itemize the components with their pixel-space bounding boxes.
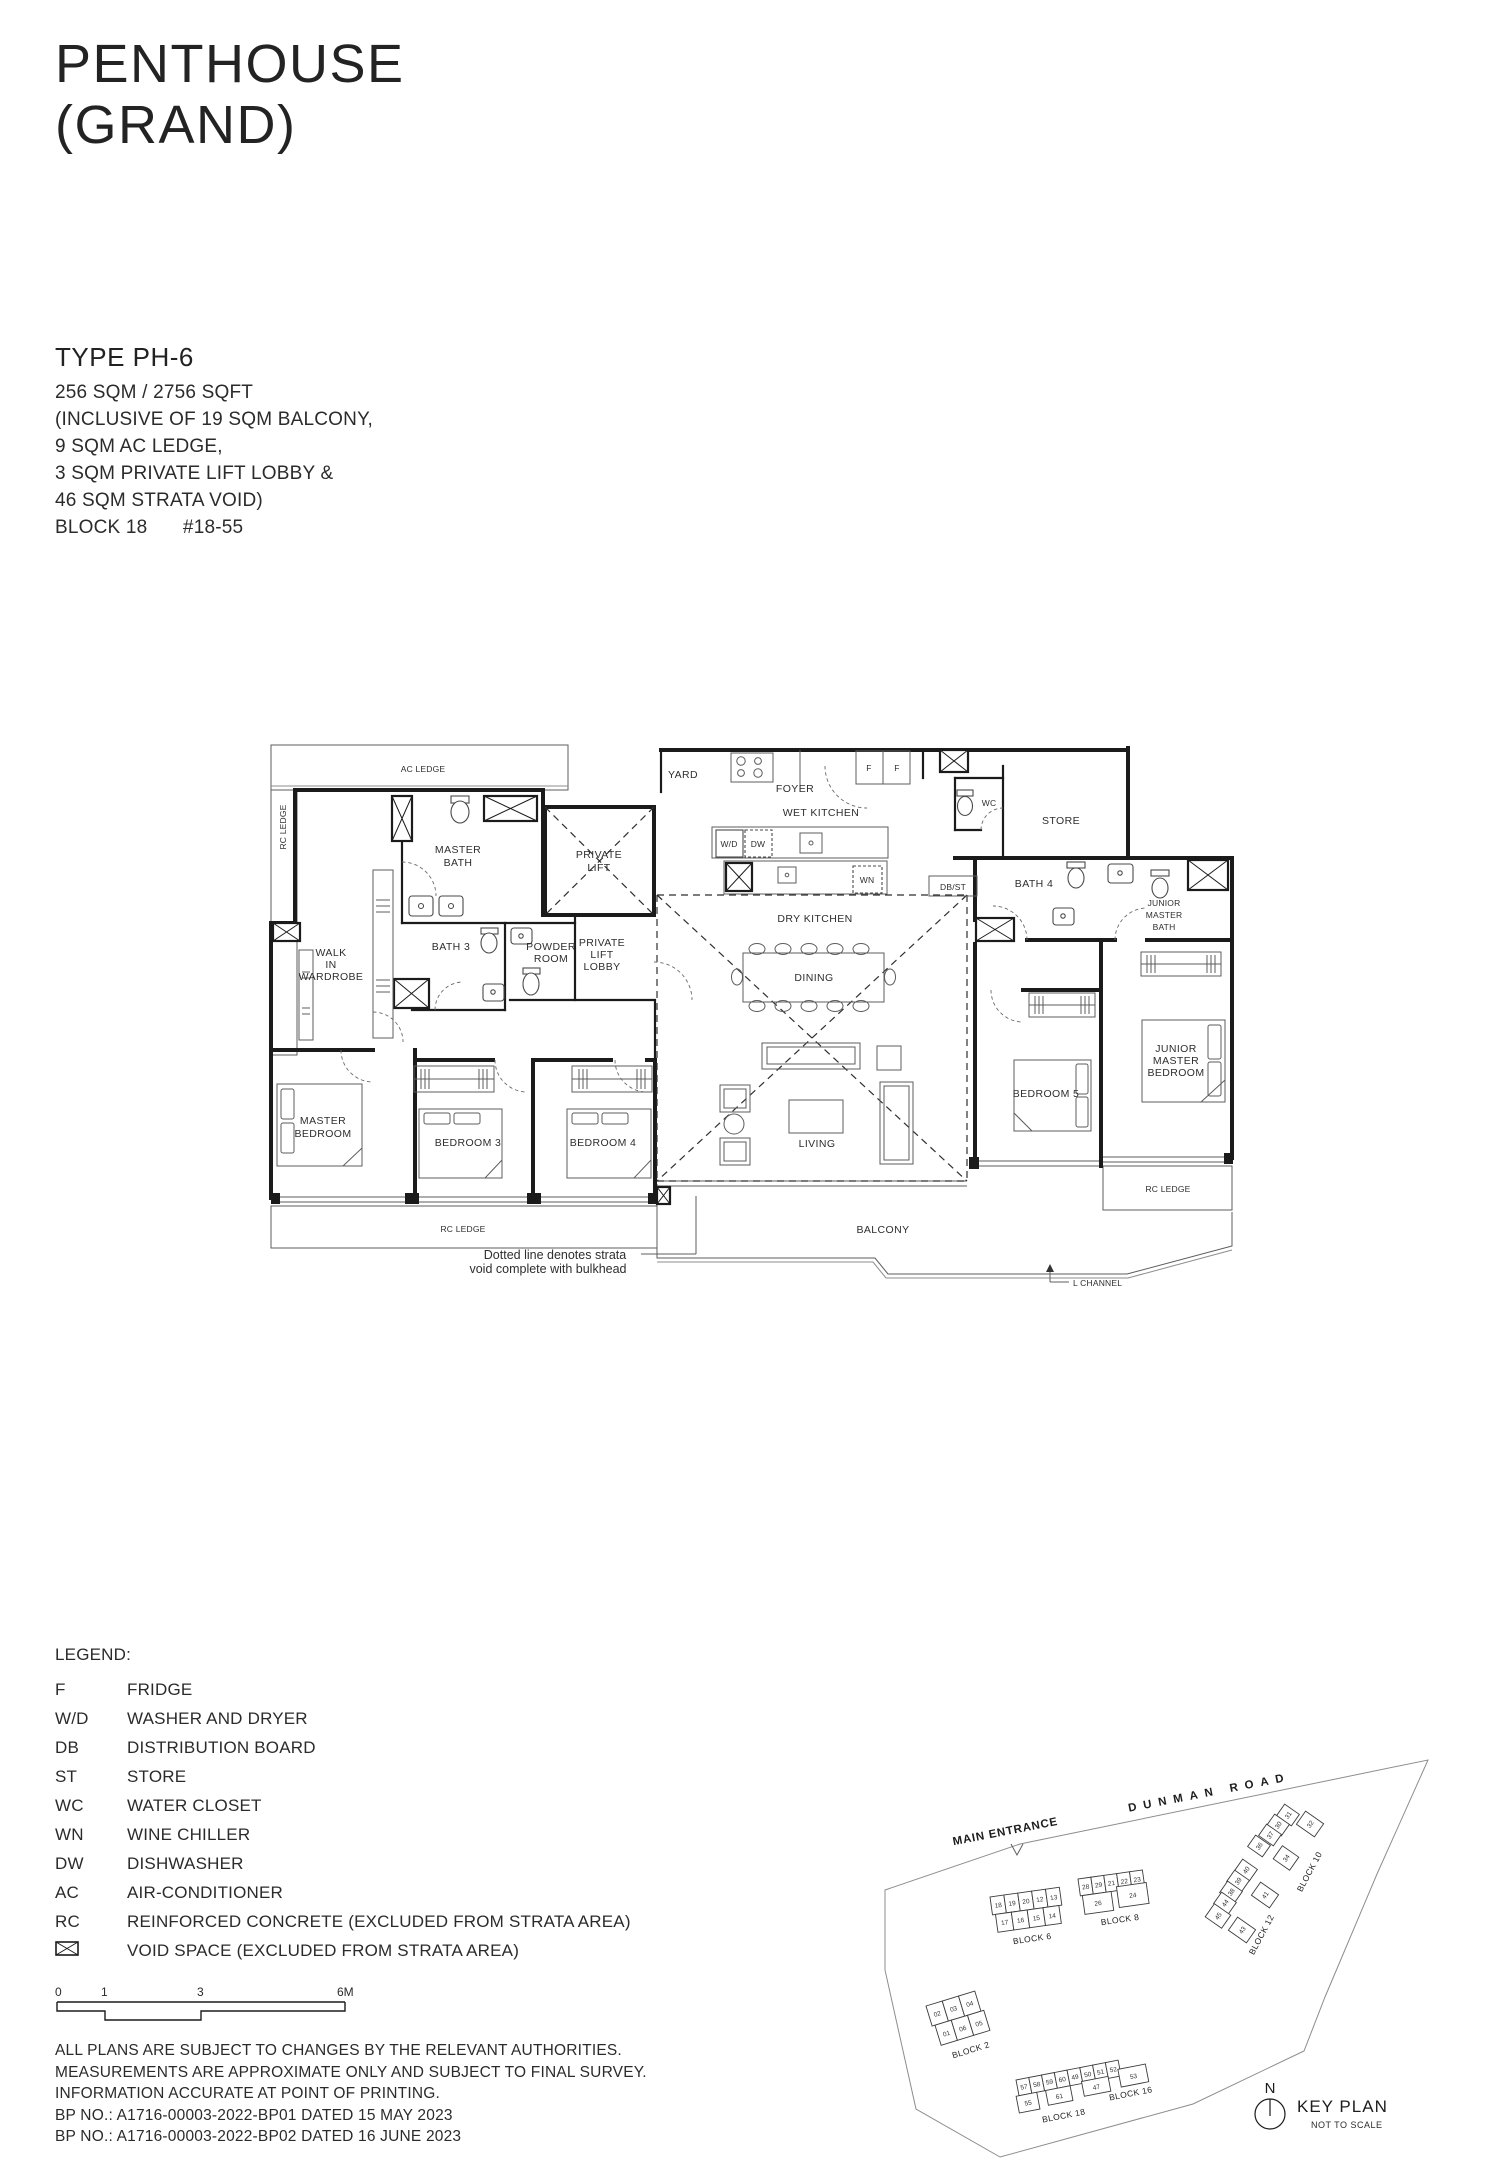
keyplan-subtitle: NOT TO SCALE (1311, 2120, 1383, 2130)
legend: LEGEND: FFRIDGE W/DWASHER AND DRYER DBDI… (55, 1645, 631, 1965)
private-lift-shaft (545, 807, 654, 915)
unit-inclusive-4: 46 SQM STRATA VOID) (55, 487, 373, 514)
label-walk-in-wardrobe: WALK (316, 947, 347, 959)
label-living: LIVING (799, 1138, 836, 1150)
unit-area: 256 SQM / 2756 SQFT (55, 379, 373, 406)
legend-heading: LEGEND: (55, 1645, 631, 1665)
keyplan-unit: 29 (1095, 1882, 1104, 1890)
legend-abbr: WN (55, 1825, 127, 1845)
label-bedroom-4: BEDROOM 4 (570, 1137, 637, 1149)
legend-row: ACAIR-CONDITIONER (55, 1878, 631, 1907)
north-label: N (1265, 2080, 1276, 2097)
label-master-bedroom: MASTER (300, 1115, 346, 1127)
strata-note-line2: void complete with bulkhead (469, 1262, 626, 1276)
label-private-lift-lobby: PRIVATE (579, 937, 625, 949)
legend-abbr: W/D (55, 1709, 127, 1729)
legend-desc: AIR-CONDITIONER (127, 1883, 283, 1903)
keyplan-block-label: BLOCK 8 (1100, 1912, 1140, 1927)
label-junior-master-bedroom: JUNIOR (1155, 1043, 1197, 1055)
legend-abbr: WC (55, 1796, 127, 1816)
label-junior-master-bath: BATH (1153, 922, 1176, 932)
keyplan-unit: 20 (1022, 1898, 1031, 1906)
label-dishwasher: DW (751, 839, 766, 849)
page-title: PENTHOUSE (GRAND) (55, 34, 405, 156)
main-entrance-label: MAIN ENTRANCE (952, 1816, 1059, 1848)
north-compass-icon: N (1255, 2080, 1285, 2129)
page-title-line1: PENTHOUSE (55, 34, 405, 95)
keyplan-block-10: 31 30 37 36 34 32 BLOCK 10 (1248, 1804, 1324, 1893)
label-private-lift-lobby: LIFT (590, 949, 613, 961)
legend-desc: DISTRIBUTION BOARD (127, 1738, 316, 1758)
unit-info: TYPE PH-6 256 SQM / 2756 SQFT (INCLUSIVE… (55, 344, 373, 541)
scale-tick-0: 0 (55, 1985, 62, 1999)
key-plan: DUNMAN ROAD MAIN ENTRANCE 18 19 20 12 13… (880, 1740, 1500, 2160)
legend-desc: DISHWASHER (127, 1854, 244, 1874)
legend-desc: WASHER AND DRYER (127, 1709, 308, 1729)
label-wine-chiller: WN (860, 875, 875, 885)
keyplan-block-label: BLOCK 2 (951, 2039, 991, 2060)
unit-number: #18-55 (183, 514, 243, 541)
label-l-channel: L CHANNEL (1073, 1278, 1122, 1288)
unit-block: BLOCK 18 (55, 514, 147, 541)
label-walk-in-wardrobe: WARDROBE (299, 971, 364, 983)
label-ac-ledge: AC LEDGE (401, 764, 446, 774)
legend-abbr: F (55, 1680, 127, 1700)
keyplan-block-label: BLOCK 10 (1295, 1850, 1324, 1893)
label-bath-4: BATH 4 (1015, 878, 1053, 890)
keyplan-block-6: 18 19 20 12 13 17 16 15 14 BLOCK 6 (990, 1887, 1067, 1948)
floor-plan: AC LEDGE RC LEDGE RC LEDGE RC LEDGE MAST… (255, 700, 1245, 1320)
label-junior-master-bath: MASTER (1146, 910, 1183, 920)
keyplan-title: KEY PLAN (1297, 2097, 1388, 2116)
disclaimer: ALL PLANS ARE SUBJECT TO CHANGES BY THE … (55, 2040, 647, 2148)
label-db-store: DB/ST (940, 882, 966, 892)
scale-tick-3: 3 (197, 1985, 204, 1999)
keyplan-block-label: BLOCK 18 (1041, 2106, 1086, 2124)
keyplan-block-8: 28 29 21 22 23 26 24 BLOCK 8 (1078, 1870, 1151, 1930)
keyplan-block-12: 40 39 38 44 45 41 43 BLOCK 12 (1205, 1859, 1278, 1956)
legend-row: WCWATER CLOSET (55, 1791, 631, 1820)
legend-abbr: DB (55, 1738, 127, 1758)
legend-desc: REINFORCED CONCRETE (EXCLUDED FROM STRAT… (127, 1912, 631, 1932)
legend-abbr: AC (55, 1883, 127, 1903)
scale-bar: 0 1 3 6M (55, 1985, 375, 2025)
label-rc-ledge-left: RC LEDGE (278, 804, 288, 849)
label-private-lift: LIFT (587, 862, 610, 874)
unit-inclusive-1: (INCLUSIVE OF 19 SQM BALCONY, (55, 406, 373, 433)
label-private-lift-lobby: LOBBY (583, 961, 620, 973)
keyplan-unit: 28 (1082, 1883, 1091, 1891)
disclaimer-line: MEASUREMENTS ARE APPROXIMATE ONLY AND SU… (55, 2062, 647, 2084)
unit-inclusive-3: 3 SQM PRIVATE LIFT LOBBY & (55, 460, 373, 487)
brochure-page: { "title": {"line1": "PENTHOUSE", "line2… (0, 0, 1500, 2168)
label-foyer: FOYER (776, 783, 814, 795)
keyplan-unit: 16 (1017, 1917, 1026, 1925)
label-bedroom-3: BEDROOM 3 (435, 1137, 502, 1149)
keyplan-unit: 15 (1032, 1915, 1041, 1923)
keyplan-block-label: BLOCK 6 (1012, 1931, 1052, 1946)
legend-row: RCREINFORCED CONCRETE (EXCLUDED FROM STR… (55, 1907, 631, 1936)
unit-block-line: BLOCK 18 #18-55 (55, 514, 373, 541)
keyplan-unit: 17 (1001, 1919, 1010, 1927)
label-master-bath: BATH (444, 857, 473, 869)
keyplan-unit: 22 (1120, 1878, 1129, 1886)
label-fridge-1: F (866, 763, 871, 773)
legend-row: VOID SPACE (EXCLUDED FROM STRATA AREA) (55, 1936, 631, 1965)
label-wc: WC (982, 798, 997, 808)
scale-tick-6m: 6M (337, 1985, 354, 1999)
legend-abbr: DW (55, 1854, 127, 1874)
label-bath-3: BATH 3 (432, 941, 470, 953)
void-space-icon (55, 1941, 127, 1961)
disclaimer-line: BP NO.: A1716-00003-2022-BP02 DATED 16 J… (55, 2126, 647, 2148)
label-balcony: BALCONY (857, 1224, 910, 1236)
keyplan-unit: 12 (1036, 1896, 1045, 1904)
label-dining: DINING (794, 972, 833, 984)
keyplan-unit: 26 (1094, 1900, 1103, 1908)
label-yard: YARD (668, 769, 698, 781)
disclaimer-line: BP NO.: A1716-00003-2022-BP01 DATED 15 M… (55, 2105, 647, 2127)
annotation-marks (1046, 1264, 1069, 1282)
label-master-bath: MASTER (435, 844, 481, 856)
keyplan-unit: 13 (1050, 1894, 1059, 1902)
unit-type: TYPE PH-6 (55, 344, 373, 371)
label-powder-room: POWDER (526, 941, 576, 953)
label-bedroom-5: BEDROOM 5 (1013, 1088, 1080, 1100)
label-powder-room: ROOM (534, 953, 568, 965)
keyplan-unit: 19 (1008, 1900, 1017, 1908)
label-rc-ledge-bottom: RC LEDGE (440, 1224, 485, 1234)
keyplan-unit: 18 (994, 1902, 1003, 1910)
label-junior-master-bath: JUNIOR (1148, 898, 1181, 908)
legend-row: FFRIDGE (55, 1675, 631, 1704)
label-wet-kitchen: WET KITCHEN (783, 807, 860, 819)
keyplan-block-2: 02 03 04 01 06 05 BLOCK 2 (926, 1990, 995, 2063)
legend-desc: STORE (127, 1767, 186, 1787)
label-fridge-2: F (894, 763, 899, 773)
legend-row: DBDISTRIBUTION BOARD (55, 1733, 631, 1762)
page-title-line2: (GRAND) (55, 95, 405, 156)
legend-row: STSTORE (55, 1762, 631, 1791)
keyplan-block-label: BLOCK 16 (1108, 2084, 1153, 2102)
main-entrance-arrow-icon (1011, 1844, 1023, 1855)
keyplan-unit: 14 (1048, 1912, 1057, 1920)
label-dry-kitchen: DRY KITCHEN (777, 913, 852, 925)
label-washer-dryer: W/D (720, 839, 737, 849)
legend-abbr: RC (55, 1912, 127, 1932)
label-walk-in-wardrobe: IN (325, 959, 336, 971)
legend-abbr: ST (55, 1767, 127, 1787)
label-private-lift: PRIVATE (576, 849, 622, 861)
legend-desc: FRIDGE (127, 1680, 192, 1700)
strata-note-line1: Dotted line denotes strata (484, 1248, 626, 1262)
label-master-bedroom: BEDROOM (294, 1128, 351, 1140)
label-rc-ledge-right: RC LEDGE (1145, 1184, 1190, 1194)
unit-inclusive-2: 9 SQM AC LEDGE, (55, 433, 373, 460)
legend-desc: VOID SPACE (EXCLUDED FROM STRATA AREA) (127, 1941, 519, 1961)
keyplan-unit: 23 (1133, 1876, 1142, 1884)
legend-row: W/DWASHER AND DRYER (55, 1704, 631, 1733)
label-junior-master-bedroom: MASTER (1153, 1055, 1199, 1067)
label-store: STORE (1042, 815, 1080, 827)
label-junior-master-bedroom: BEDROOM (1147, 1067, 1204, 1079)
legend-desc: WATER CLOSET (127, 1796, 262, 1816)
keyplan-unit: 24 (1129, 1892, 1138, 1900)
walls (271, 748, 1232, 1200)
keyplan-block-18-16: 57 58 59 60 49 50 51 52 55 61 47 53 BLOC… (1013, 2055, 1155, 2129)
scale-tick-1: 1 (101, 1985, 108, 1999)
legend-row: DWDISHWASHER (55, 1849, 631, 1878)
legend-row: WNWINE CHILLER (55, 1820, 631, 1849)
disclaimer-line: ALL PLANS ARE SUBJECT TO CHANGES BY THE … (55, 2040, 647, 2062)
keyplan-unit: 21 (1107, 1880, 1116, 1888)
disclaimer-line: INFORMATION ACCURATE AT POINT OF PRINTIN… (55, 2083, 647, 2105)
legend-desc: WINE CHILLER (127, 1825, 250, 1845)
